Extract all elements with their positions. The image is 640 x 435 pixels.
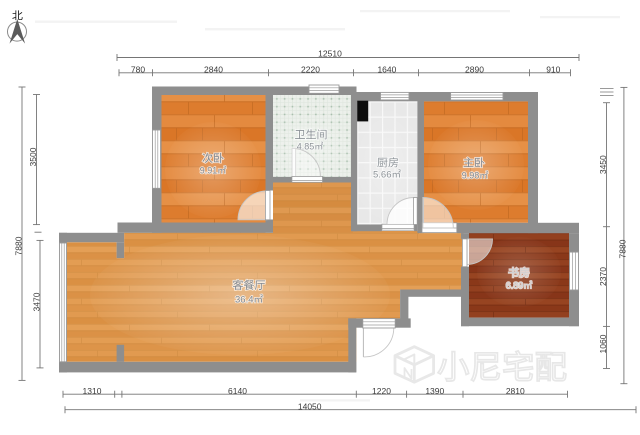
svg-text:6.89: 6.89	[506, 281, 524, 291]
svg-text:14050: 14050	[298, 402, 322, 412]
svg-text:6140: 6140	[228, 386, 247, 396]
svg-text:1220: 1220	[372, 386, 391, 396]
svg-text:7880: 7880	[618, 239, 628, 258]
svg-text:2840: 2840	[204, 64, 223, 74]
svg-text:3500: 3500	[28, 147, 38, 166]
svg-text:2890: 2890	[465, 64, 484, 74]
svg-text:5.66: 5.66	[373, 170, 392, 181]
svg-text:9.98: 9.98	[462, 171, 480, 181]
svg-text:3450: 3450	[598, 155, 608, 174]
svg-text:2220: 2220	[301, 64, 320, 74]
svg-text:9.91: 9.91	[200, 166, 218, 176]
svg-text:1060: 1060	[598, 334, 608, 353]
svg-text:1310: 1310	[83, 386, 102, 396]
svg-text:36.4: 36.4	[235, 295, 254, 306]
svg-text:7880: 7880	[13, 236, 23, 255]
svg-text:3470: 3470	[32, 292, 42, 311]
svg-text:12510: 12510	[318, 49, 342, 59]
svg-text:1390: 1390	[425, 386, 444, 396]
svg-text:910: 910	[546, 64, 560, 74]
svg-text:2810: 2810	[506, 386, 525, 396]
svg-text:2370: 2370	[598, 267, 608, 286]
svg-text:1640: 1640	[377, 64, 396, 74]
svg-text:780: 780	[131, 64, 145, 74]
